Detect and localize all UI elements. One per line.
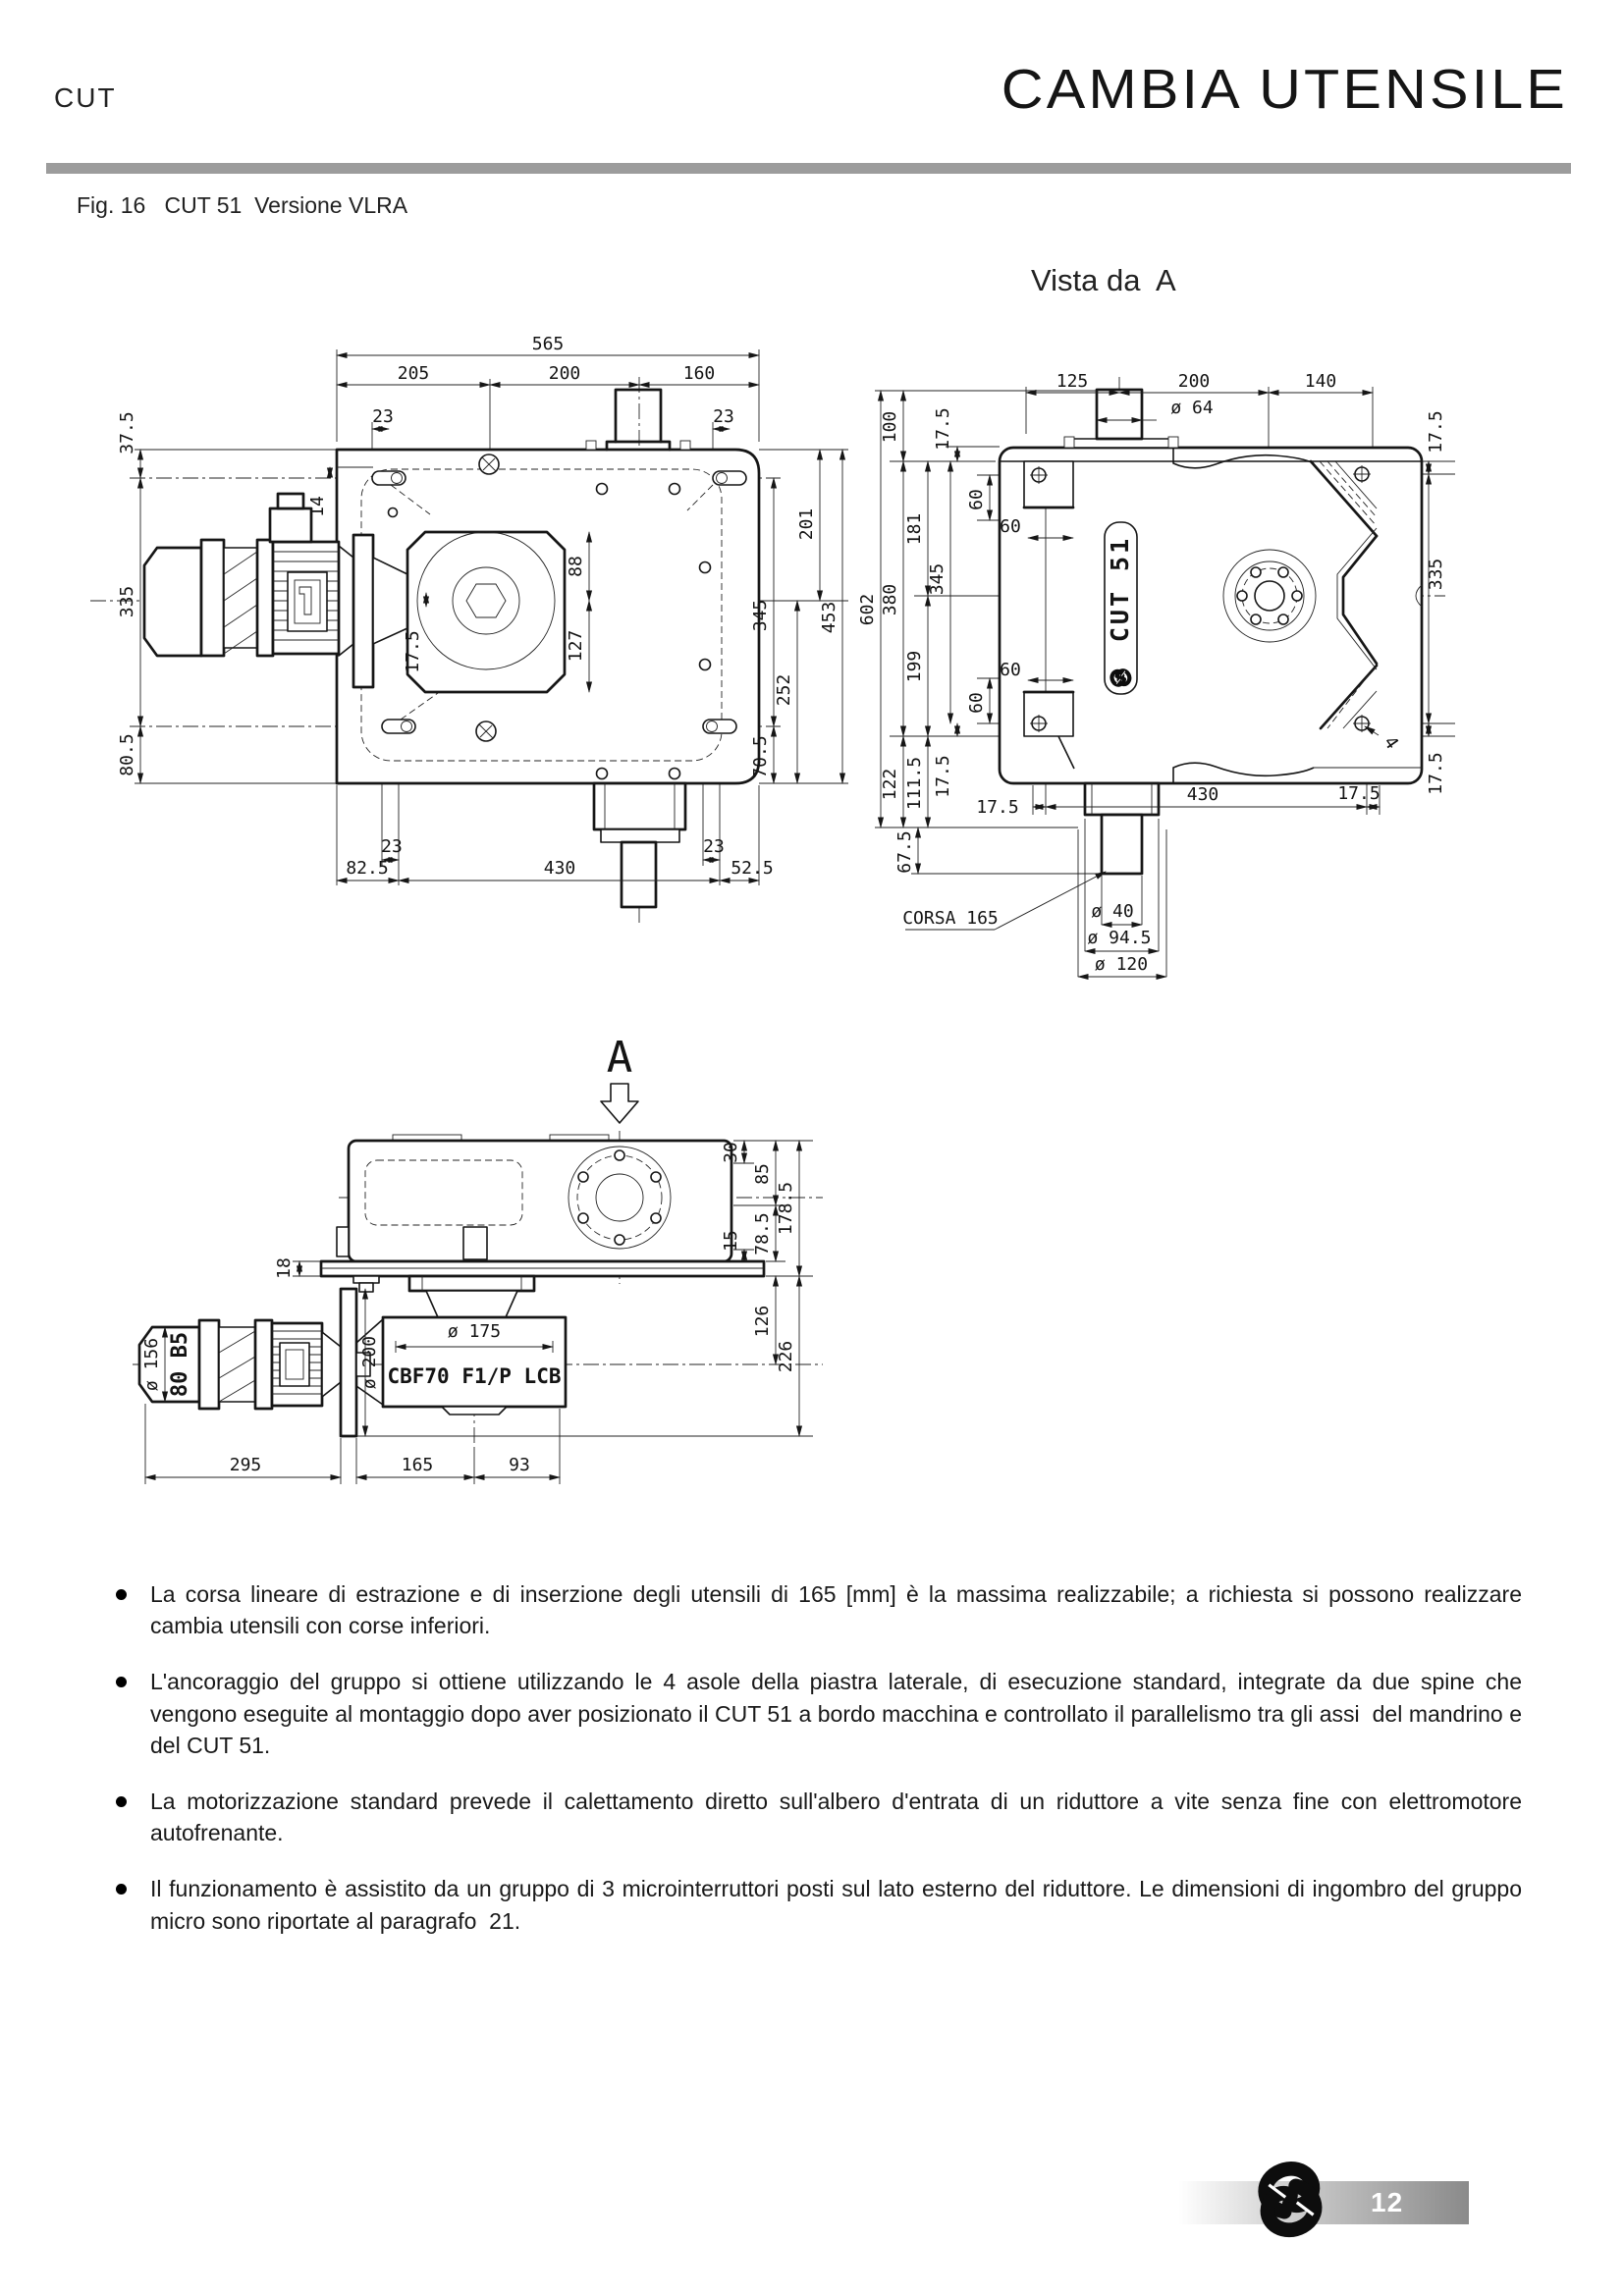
dim-label: 200: [1178, 371, 1211, 392]
dim-label: ø 64: [1170, 398, 1213, 418]
note-text: L'ancoraggio del gruppo si ottiene utili…: [150, 1666, 1522, 1761]
dim-label: 93: [509, 1455, 530, 1475]
dim-label: 23: [372, 406, 394, 427]
dim-label: 140: [1305, 371, 1337, 392]
dim-label: 205: [398, 363, 430, 384]
dim-label: 60: [1000, 516, 1021, 537]
dim-label: 88: [566, 556, 586, 577]
bullet-icon: [116, 1884, 127, 1895]
dim-label: 201: [796, 508, 817, 541]
dim-label: 126: [752, 1306, 773, 1338]
front-view-tool-disk: [407, 532, 565, 692]
bottom-view-drawing: A: [83, 1021, 830, 1492]
dim-label: 67.5: [894, 830, 915, 873]
dim-label: 52.5: [731, 858, 773, 879]
dim-label: 111.5: [904, 757, 925, 810]
dim-label: 60: [966, 692, 987, 714]
dim-label: 17.5: [403, 630, 423, 672]
list-item: La motorizzazione standard prevede il ca…: [116, 1786, 1522, 1848]
dim-label: 345: [927, 563, 947, 596]
dim-label: 80.5: [117, 733, 137, 775]
dim-label: 17.5: [1426, 752, 1446, 794]
bullet-icon: [116, 1796, 127, 1807]
dim-label: 70.5: [750, 735, 771, 777]
dim-label: ø 156: [141, 1338, 162, 1391]
dim-label: 100: [880, 411, 900, 444]
brand-logo-icon: [1235, 2150, 1348, 2248]
dim-label: 60: [966, 489, 987, 510]
list-item: Il funzionamento è assistito da un grupp…: [116, 1873, 1522, 1936]
dim-label: 453: [819, 602, 839, 634]
dim-label: 178.5: [776, 1182, 796, 1235]
dim-label: ø 40: [1091, 901, 1133, 922]
dim-label: 565: [532, 334, 565, 354]
dim-label: 127: [566, 630, 586, 663]
dim-label: 165: [402, 1455, 434, 1475]
header-rule: [46, 163, 1571, 174]
dim-label: 15: [721, 1230, 741, 1252]
unit-model-label: CUT 51: [1106, 536, 1134, 642]
notes-list: La corsa lineare di estrazione e di inse…: [116, 1578, 1522, 1961]
dim-label: 345: [750, 600, 771, 632]
dim-label: 602: [857, 594, 878, 626]
dim-label: 37.5: [117, 411, 137, 454]
dim-label: 181: [904, 513, 925, 546]
side-view-drawing: CUT 51 125 200 140 ø 64 602 100 380 122 …: [864, 373, 1596, 982]
dim-label: ø 175: [448, 1321, 501, 1342]
dim-label: 60: [1000, 660, 1021, 680]
bullet-icon: [116, 1589, 127, 1600]
dim-label: 160: [683, 363, 716, 384]
dim-label: 23: [381, 836, 403, 857]
dim-label: 30: [721, 1142, 741, 1163]
side-view-nameplate: CUT 51: [1105, 522, 1137, 694]
dim-label: 18: [274, 1257, 295, 1279]
dim-label: ø 94.5: [1087, 928, 1151, 948]
page-title: CAMBIA UTENSILE: [1001, 57, 1568, 122]
dim-label: 252: [774, 674, 794, 707]
view-direction-arrow-icon: [601, 1084, 638, 1123]
dim-label: 125: [1056, 371, 1089, 392]
dim-label: 14: [307, 496, 328, 517]
note-text: La corsa lineare di estrazione e di inse…: [150, 1578, 1522, 1641]
dim-label: 17.5: [1426, 410, 1446, 453]
view-direction-label: A: [607, 1033, 633, 1083]
dim-label: 295: [230, 1455, 262, 1475]
dim-label: ø 200: [359, 1336, 380, 1389]
page-number: 12: [1371, 2187, 1403, 2218]
doc-code: CUT: [54, 82, 117, 114]
dim-label: 17.5: [933, 755, 953, 797]
dim-label: 85: [752, 1163, 773, 1185]
list-item: L'ancoraggio del gruppo si ottiene utili…: [116, 1666, 1522, 1761]
dim-label: 17.5: [976, 797, 1018, 818]
dim-label: 200: [549, 363, 581, 384]
dim-label: 78.5: [752, 1212, 773, 1255]
dim-label: 17.5: [933, 407, 953, 450]
dim-label: 23: [713, 406, 734, 427]
gearmotor-model-label: CBF70 F1/P LCB: [387, 1364, 561, 1388]
figure-caption: Fig. 16 CUT 51 Versione VLRA: [77, 192, 407, 219]
dim-label: 430: [1187, 784, 1219, 805]
dim-label: 380: [880, 584, 900, 616]
dim-label: 335: [1426, 559, 1446, 591]
front-view-drawing: 565 205 200 160 23 23 37.5 335 80.5 14 1…: [79, 334, 864, 933]
corsa-label: CORSA 165: [902, 908, 999, 929]
note-text: Il funzionamento è assistito da un grupp…: [150, 1873, 1522, 1936]
note-text: La motorizzazione standard prevede il ca…: [150, 1786, 1522, 1848]
dim-label: 335: [117, 586, 137, 618]
dim-label: 82.5: [346, 858, 388, 879]
dim-label: 23: [703, 836, 725, 857]
dim-label: 430: [544, 858, 576, 879]
list-item: La corsa lineare di estrazione e di inse…: [116, 1578, 1522, 1641]
dim-label: 199: [904, 651, 925, 683]
motor-size-label: 80 B5: [168, 1332, 192, 1397]
dim-label: 122: [880, 769, 900, 801]
bullet-icon: [116, 1677, 127, 1687]
dim-label: 17.5: [1337, 783, 1380, 804]
view-a-title: Vista da A: [1031, 263, 1176, 298]
dim-label: ø 120: [1095, 954, 1148, 975]
dim-label: 226: [776, 1341, 796, 1373]
